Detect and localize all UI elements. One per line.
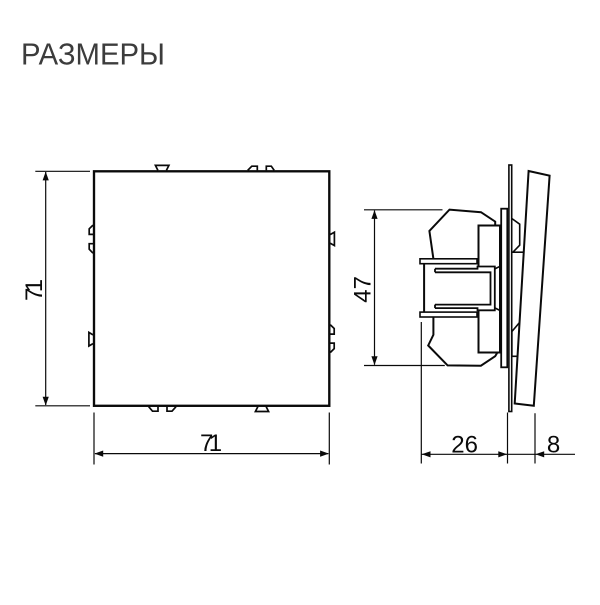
svg-text:26: 26 [451, 431, 478, 458]
svg-text:РАЗМЕРЫ: РАЗМЕРЫ [21, 38, 165, 72]
svg-text:47: 47 [350, 276, 377, 303]
svg-text:8: 8 [547, 431, 560, 458]
